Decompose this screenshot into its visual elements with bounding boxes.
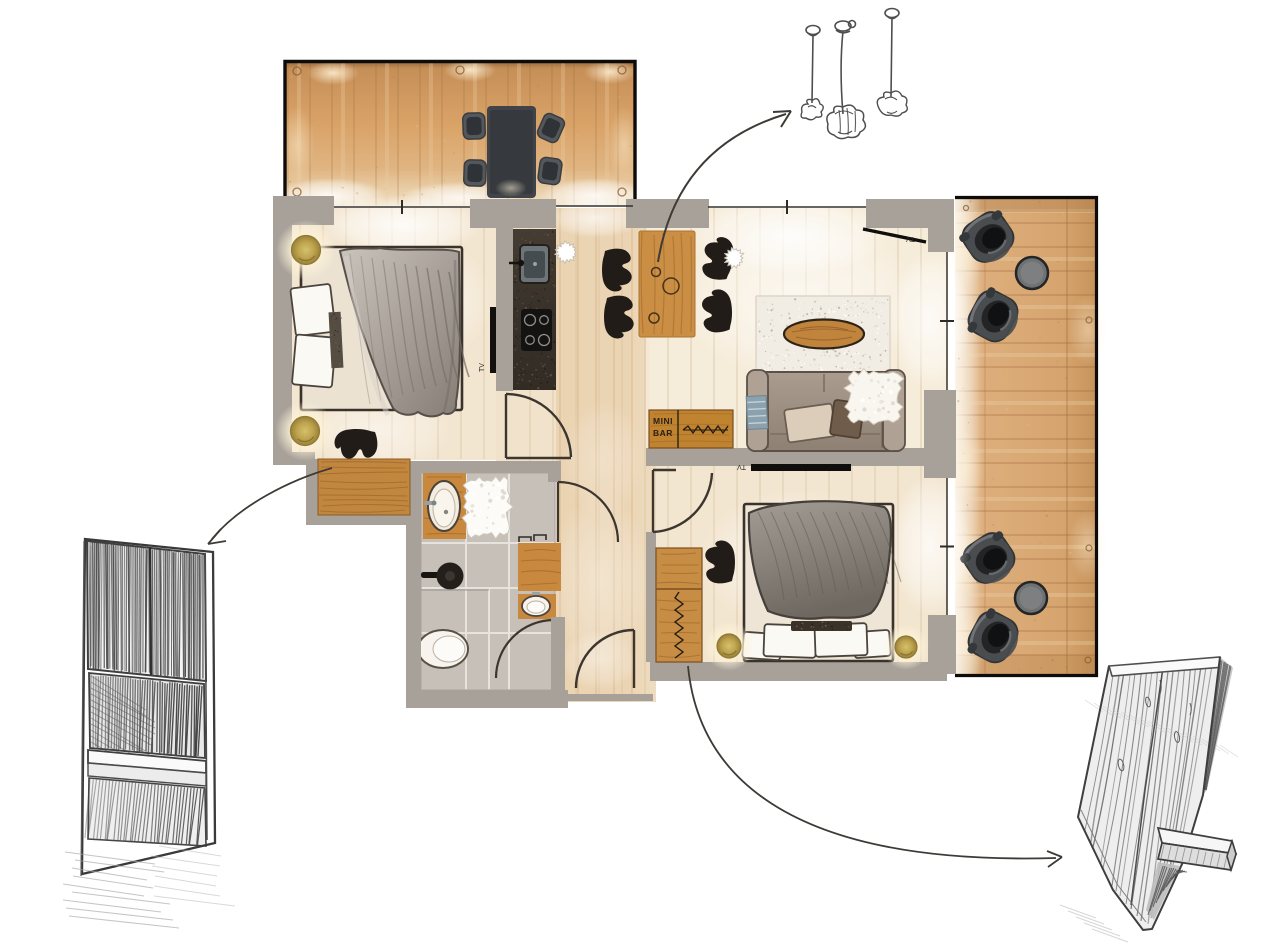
svg-text:MINI: MINI (653, 416, 673, 426)
svg-text:TV: TV (479, 363, 486, 372)
svg-text:TV: TV (906, 235, 915, 242)
svg-text:BAR: BAR (653, 428, 673, 438)
svg-text:TV: TV (737, 463, 746, 470)
